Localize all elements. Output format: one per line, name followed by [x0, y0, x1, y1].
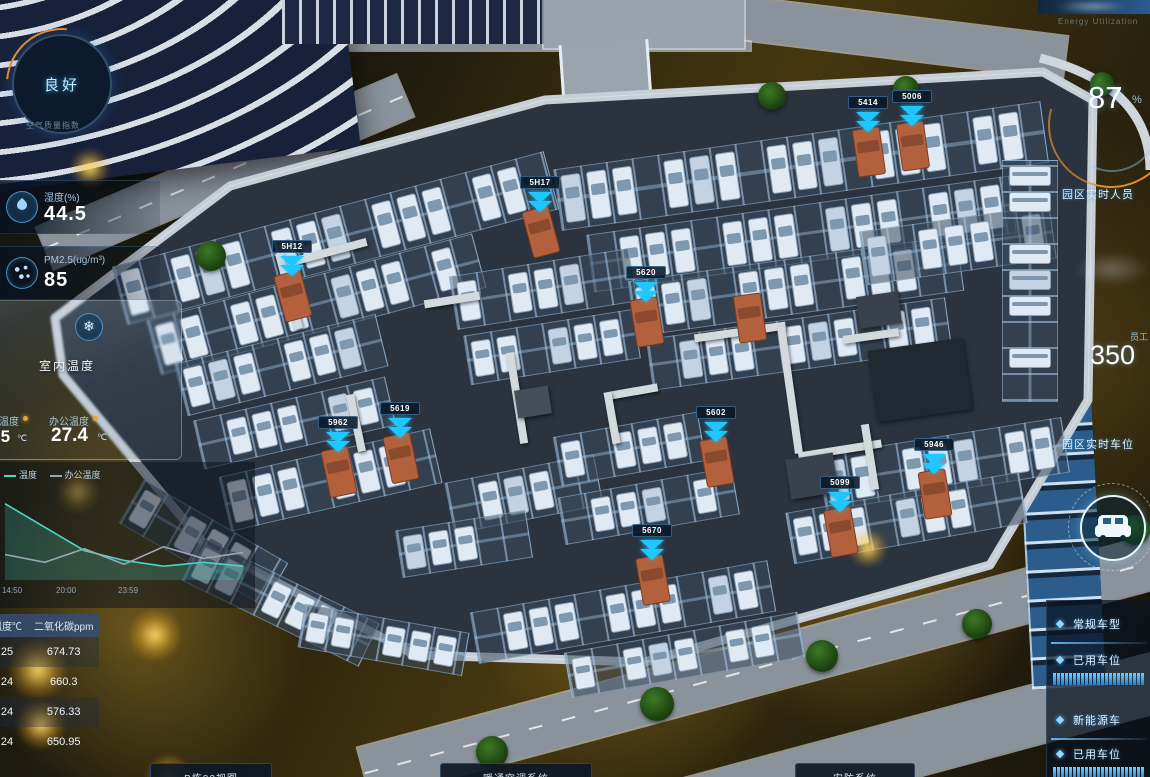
table-cell: 674.73 [28, 637, 99, 667]
parked-car [817, 137, 843, 187]
legend-swatch-2 [50, 475, 62, 477]
used1-bar [1053, 672, 1149, 686]
car-marker-label: 5670 [632, 524, 672, 537]
indoor-temp-title: 室内温度 [39, 357, 95, 374]
bar-segment [1125, 673, 1128, 685]
parked-car [714, 151, 740, 201]
x-tick-2: 20:00 [56, 586, 76, 595]
car-marker-label: 5006 [892, 90, 932, 103]
bar-segment [1061, 673, 1064, 685]
used1-dot [1056, 656, 1064, 664]
air-quality-status: 良好 [14, 74, 110, 95]
bar-segment [1125, 767, 1128, 777]
table-row: 24660.3 [0, 667, 99, 697]
bar-segment [1109, 767, 1112, 777]
parked-car [910, 306, 935, 346]
title-bar [1038, 0, 1150, 14]
parked-car [662, 421, 688, 460]
parked-car [380, 260, 410, 306]
hall-temp-unit: ℃ [17, 433, 27, 444]
bar-segment [1077, 767, 1080, 777]
parked-car [283, 339, 312, 383]
parked-car [470, 339, 495, 378]
table-cell: 24 [0, 667, 28, 697]
car-marker-label: 5619 [380, 402, 420, 415]
pm25-icon [6, 257, 38, 289]
bar-segment [1089, 673, 1092, 685]
divider-2 [1051, 738, 1147, 740]
service-block [514, 386, 552, 419]
marker-chevron-icon [856, 121, 880, 132]
humidity-label: 湿度(%) [44, 189, 80, 204]
bar-segment [1109, 673, 1112, 685]
parked-car [559, 263, 585, 306]
parked-car [969, 220, 994, 262]
parked-car [605, 592, 631, 633]
pm25-value: 85 [44, 269, 68, 292]
smart-campus-dashboard: 541450065H175H12562059625619560259465099… [0, 0, 1150, 777]
parked-car [943, 224, 968, 266]
parked-car [277, 466, 306, 511]
parked-car [503, 610, 529, 651]
office-temp-value: 27.4 [51, 425, 88, 447]
bar-segment [1105, 673, 1108, 685]
vehicle-panel: 常规车型 已用车位 新能源车 已用车位 [1046, 600, 1150, 777]
legend-label-1: 温度 [19, 470, 37, 480]
marker-chevron-icon [326, 441, 350, 452]
legend-swatch-1 [4, 475, 16, 477]
bar-segment [1121, 673, 1124, 685]
parked-car [355, 267, 385, 313]
parked-car [766, 144, 792, 194]
table-cell: 25 [0, 637, 28, 667]
parked-car [670, 227, 696, 273]
car-marker-label: 5H17 [520, 176, 560, 189]
parked-car [276, 404, 304, 444]
chart-legend: 温度 办公温度 [4, 468, 101, 481]
bar-segment [1097, 767, 1100, 777]
staff-value: 350 [1090, 340, 1135, 371]
type1-label: 常规车型 [1073, 616, 1121, 632]
parked-car [679, 339, 704, 379]
bar-segment [1065, 767, 1068, 777]
legend-label-2: 办公温度 [65, 470, 101, 480]
bar-segment [1121, 767, 1124, 777]
tree [806, 640, 838, 672]
bar-segment [1117, 673, 1120, 685]
car-marker-label: 5620 [626, 266, 666, 279]
parked-car [763, 267, 789, 311]
parked-car [528, 606, 554, 647]
parked-car [722, 220, 748, 266]
hall-temp-value: 26.5 [0, 427, 10, 447]
car-marker-label: 5414 [848, 96, 888, 109]
bottom-nav-button[interactable]: 安防系统 [795, 763, 915, 777]
pm25-panel: PM2.5(ug/m³) 85 [0, 246, 160, 300]
parked-car [330, 273, 360, 319]
parked-car [547, 326, 572, 365]
bar-segment [1053, 673, 1056, 685]
parking-title: 园区实时车位 [1062, 436, 1134, 452]
bar-segment [1081, 673, 1084, 685]
type2-dot [1056, 716, 1064, 724]
bar-segment [1057, 673, 1060, 685]
parked-car [1004, 430, 1030, 475]
bar-segment [1085, 673, 1088, 685]
co2-table: 温度℃二氧化碳ppm 25674.7324660.324576.3324650.… [0, 614, 99, 757]
parked-car [571, 655, 596, 690]
parked-car [622, 646, 647, 681]
car-icon [1080, 495, 1146, 561]
bar-segment [1077, 673, 1080, 685]
parked-car [407, 630, 432, 663]
parked-car [305, 612, 330, 645]
table-row: 25674.73 [0, 637, 99, 667]
energy-subtitle: Energy Utilization [1058, 17, 1138, 26]
humidity-icon [6, 191, 38, 223]
parked-car [637, 426, 663, 465]
parked-car [689, 155, 715, 205]
used2-bar [1053, 766, 1149, 777]
hall-temp-label: 大厅温度 [0, 413, 19, 428]
used2-label: 已用车位 [1073, 746, 1121, 762]
bar-segment [1073, 767, 1076, 777]
parked-car [641, 487, 667, 524]
parked-car [972, 115, 998, 165]
car-marker-label: 5099 [820, 476, 860, 489]
bar-segment [1093, 767, 1096, 777]
table-header: 二氧化碳ppm [28, 614, 99, 637]
parked-car [533, 267, 559, 310]
snowflake-icon: ❄ [75, 313, 103, 341]
parked-car [773, 213, 799, 259]
bar-segment [1085, 767, 1088, 777]
table-header: 温度℃ [0, 614, 28, 637]
co2-table-panel: 温度℃二氧化碳ppm 25674.7324660.324576.3324650.… [0, 614, 136, 757]
temp-chart-panel: 温度 办公温度 14:50 20:00 23:59 [0, 462, 255, 608]
bar-segment [1141, 673, 1144, 685]
bar-segment [1113, 673, 1116, 685]
bar-segment [1081, 767, 1084, 777]
parked-car [421, 186, 452, 236]
type1-dot [1056, 620, 1064, 628]
parked-car [402, 533, 427, 570]
parked-car [707, 574, 733, 615]
divider-1 [1051, 642, 1147, 644]
parked-car [560, 440, 586, 479]
bar-segment [1101, 767, 1104, 777]
hall-temp-dot [23, 416, 28, 421]
used2-dot [1056, 750, 1064, 758]
bar-segment [1053, 767, 1056, 777]
parked-car [507, 271, 533, 314]
service-block [856, 291, 902, 329]
parked-car [663, 158, 689, 208]
car-marker-label: 5H12 [272, 240, 312, 253]
parked-car [590, 496, 616, 533]
energy-gauge-unit: % [1132, 94, 1142, 106]
title-smudge [1056, 1, 1128, 12]
bar-segment [1069, 767, 1072, 777]
parked-car [789, 263, 815, 307]
marker-chevron-icon [388, 427, 412, 438]
parked-car [330, 616, 355, 649]
used1-label: 已用车位 [1073, 652, 1121, 668]
bottom-nav-button[interactable]: B栋02视图 [150, 763, 272, 777]
parked-car [998, 111, 1024, 161]
parked-car [918, 228, 943, 270]
type2-label: 新能源车 [1073, 712, 1121, 728]
table-cell: 660.3 [28, 667, 99, 697]
parked-car [308, 333, 337, 377]
tree [962, 609, 992, 639]
bar-segment [1093, 673, 1096, 685]
table-cell: 24 [0, 727, 28, 757]
indoor-temp-panel: ❄ 室内温度 大厅温度 26.5 ℃ 办公温度 27.4 ℃ [0, 300, 182, 460]
parked-car [750, 624, 775, 659]
right-hud: Energy Utilization 87 % 园区实时人员 员工 350 园区… [1030, 0, 1150, 777]
car-marker-label: 5602 [696, 406, 736, 419]
parked-car [660, 281, 686, 325]
bar-segment [1133, 767, 1136, 777]
pm25-label: PM2.5(ug/m³) [44, 255, 105, 266]
parked-car [611, 166, 637, 216]
parked-car [453, 525, 478, 562]
bar-segment [1089, 767, 1092, 777]
table-cell: 650.95 [28, 727, 99, 757]
marker-chevron-icon [900, 115, 924, 126]
parked-car [747, 217, 773, 263]
people-smudge [1074, 252, 1150, 286]
car-locate-button[interactable] [1080, 495, 1144, 559]
bar-segment [1105, 767, 1108, 777]
table-row: 24650.95 [0, 727, 99, 757]
bar-segment [1137, 767, 1140, 777]
tree [758, 82, 786, 110]
parked-car [333, 327, 362, 371]
bar-segment [1057, 767, 1060, 777]
parked-car [528, 470, 555, 511]
left-hud: 良好 空气质量指数 湿度(%) 44.5 PM2.5(ug/m³) 85 ❄ 室… [0, 0, 260, 777]
marker-chevron-icon [528, 201, 552, 212]
bar-segment [1101, 673, 1104, 685]
x-tick-3: 23:59 [118, 586, 138, 595]
bar-segment [1073, 673, 1076, 685]
parked-car [554, 601, 580, 642]
bar-segment [1065, 673, 1068, 685]
parked-car [807, 321, 832, 361]
parked-car [586, 169, 612, 219]
temp-line-chart [0, 484, 250, 582]
parked-car [673, 637, 698, 672]
bar-segment [1141, 767, 1144, 777]
marker-chevron-icon [828, 501, 852, 512]
bottom-nav-button[interactable]: 暖通空调系统 [440, 763, 592, 777]
parked-car [792, 515, 818, 556]
parked-car [648, 642, 673, 677]
parked-car [725, 628, 750, 663]
parked-car [616, 491, 642, 528]
office-temp-unit: ℃ [97, 432, 107, 443]
bar-segment [1133, 673, 1136, 685]
parked-car [686, 277, 712, 321]
table-cell: 24 [0, 697, 28, 727]
parked-car [381, 625, 406, 658]
car-marker-label: 5946 [914, 438, 954, 451]
marker-chevron-icon [640, 549, 664, 560]
marker-chevron-icon [280, 265, 304, 276]
parked-car [895, 497, 921, 538]
humidity-value: 44.5 [44, 203, 87, 226]
table-row: 24576.33 [0, 697, 99, 727]
bar-segment [1113, 767, 1116, 777]
marker-chevron-icon [704, 431, 728, 442]
parked-car [496, 166, 527, 216]
bar-segment [1097, 673, 1100, 685]
x-tick-1: 14:50 [2, 586, 22, 595]
parked-car [704, 335, 729, 375]
car-marker-label: 5962 [318, 416, 358, 429]
tree [640, 687, 674, 721]
parked-car [792, 140, 818, 190]
energy-gauge-value: 87 [1088, 80, 1122, 116]
bar-segment [1129, 767, 1132, 777]
parked-car [573, 322, 598, 361]
parked-car [353, 449, 382, 494]
humidity-panel: 湿度(%) 44.5 [0, 180, 160, 234]
service-block [867, 338, 972, 423]
people-title: 园区实时人员 [1062, 186, 1134, 202]
parked-car [733, 570, 759, 611]
parked-car [953, 438, 979, 483]
table-cell: 576.33 [28, 697, 99, 727]
parked-car [560, 173, 586, 223]
air-quality-gauge: 良好 [12, 34, 112, 134]
bar-segment [1129, 673, 1132, 685]
bar-segment [1117, 767, 1120, 777]
parked-car [428, 529, 453, 566]
office-temp-dot [93, 416, 98, 421]
bar-segment [1061, 767, 1064, 777]
marker-chevron-icon [634, 291, 658, 302]
parked-car [599, 318, 624, 357]
parked-car [433, 634, 458, 667]
marker-chevron-icon [922, 463, 946, 474]
bar-segment [1069, 673, 1072, 685]
bar-segment [1137, 673, 1140, 685]
air-quality-caption: 空气质量指数 [26, 120, 80, 131]
parked-car [841, 256, 867, 300]
parked-car [866, 235, 891, 277]
parked-car [825, 206, 851, 252]
